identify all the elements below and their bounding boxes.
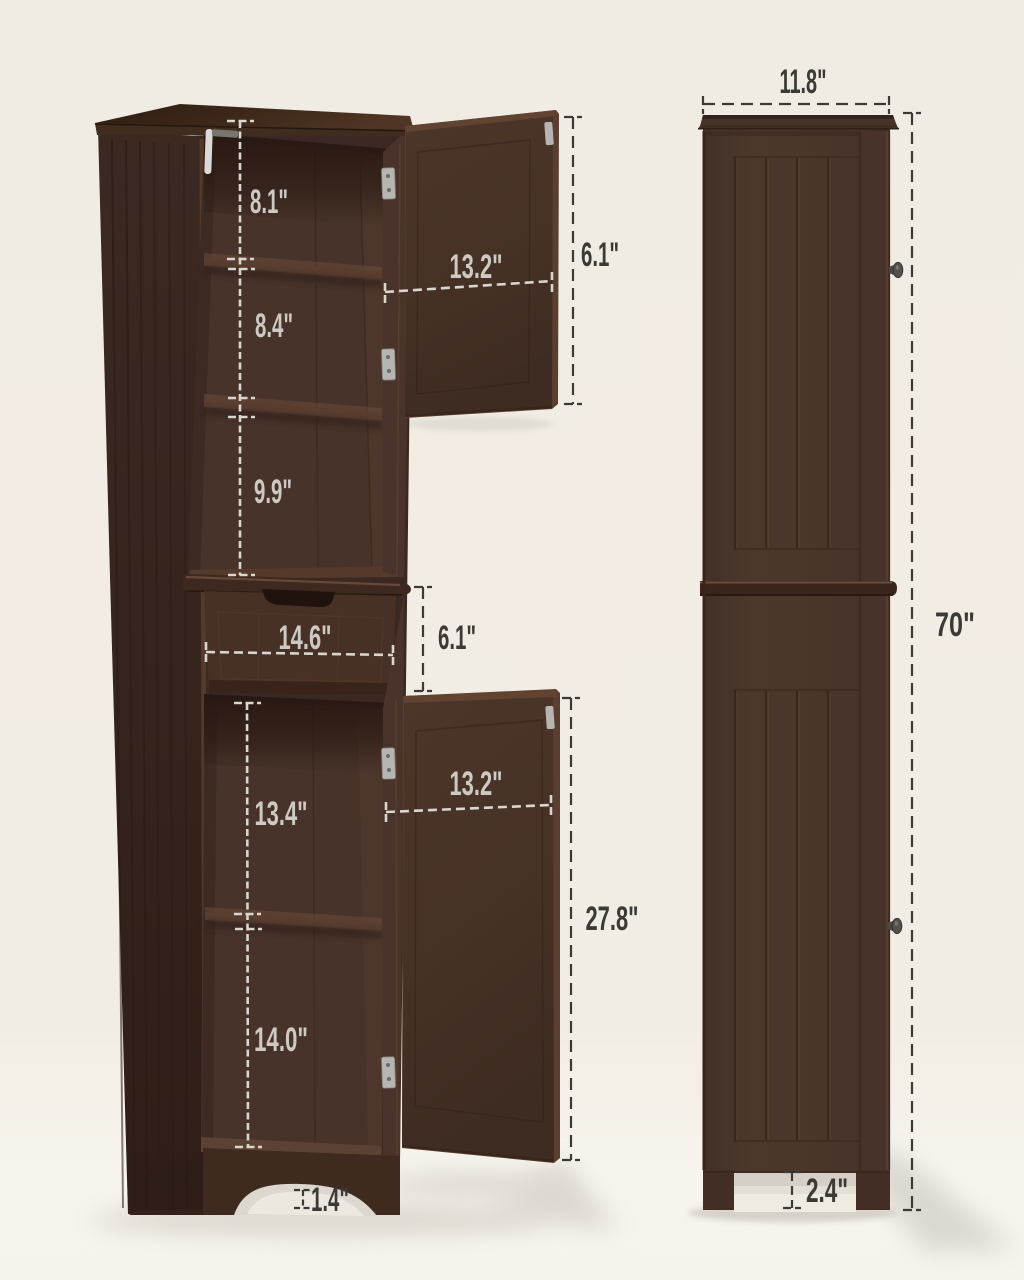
svg-text:6.1": 6.1" — [581, 236, 619, 274]
svg-text:6.1": 6.1" — [438, 619, 476, 657]
svg-text:14.0": 14.0" — [254, 1021, 308, 1059]
svg-text:13.2": 13.2" — [450, 248, 503, 286]
svg-text:13.4": 13.4" — [255, 795, 308, 833]
svg-text:2.4": 2.4" — [806, 1172, 848, 1210]
svg-text:11.8": 11.8" — [780, 63, 827, 101]
svg-text:13.2": 13.2" — [450, 765, 503, 803]
svg-text:70": 70" — [935, 606, 975, 644]
svg-text:1.4": 1.4" — [311, 1181, 349, 1219]
svg-text:8.4": 8.4" — [255, 307, 293, 345]
svg-text:9.9": 9.9" — [254, 473, 292, 511]
svg-text:14.6": 14.6" — [279, 619, 332, 657]
svg-text:27.8": 27.8" — [586, 900, 639, 938]
svg-text:8.1": 8.1" — [250, 183, 288, 221]
